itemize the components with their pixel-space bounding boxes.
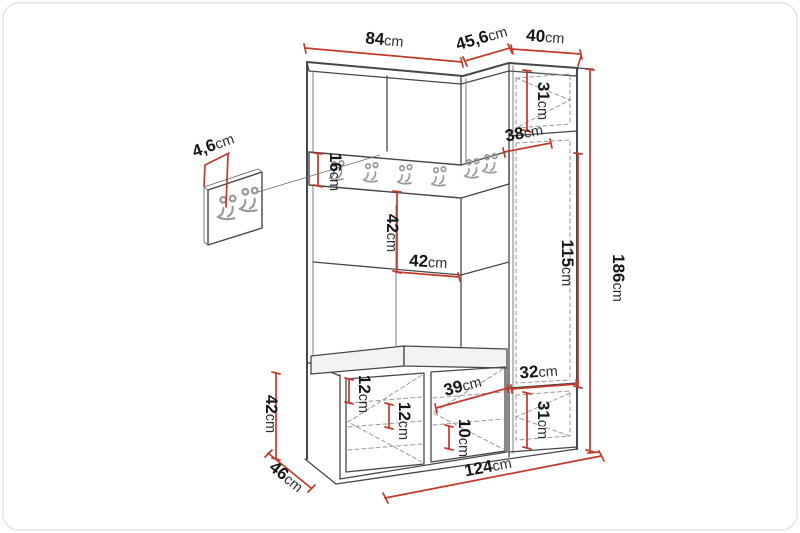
dim-label-right-top: 31cm [534,82,553,120]
dim-label-bench-height: 42cm [262,395,281,433]
dimension-labels: 84cm 45,6cm 40cm 4,6cm 16cm 42cm 42cm 38… [190,21,628,496]
dim-label-total-height: 186cm [609,254,628,302]
dim-label-top-main: 84cm [365,28,405,50]
dim-label-right-width: 32cm [519,361,558,383]
open-shelf-section [313,205,509,346]
dim-label-right-bottom: 31cm [534,401,553,439]
dim-label-panel-thickness: 4,6cm [190,129,237,162]
furniture-diagram: 84cm 45,6cm 40cm 4,6cm 16cm 42cm 42cm 38… [0,0,800,533]
bench-cushions [311,346,507,374]
dim-label-bench-shelf: 10cm [455,419,474,457]
dim-label-top-corner: 45,6cm [454,21,510,54]
furniture-diagram-page: 84cm 45,6cm 40cm 4,6cm 16cm 42cm 42cm 38… [0,0,800,533]
dim-label-rail-height: 16cm [326,153,345,191]
dim-label-right-door: 115cm [558,240,577,287]
dim-label-mid-height: 42cm [383,214,402,252]
dim-label-bench-upper: 12cm [355,375,374,413]
dim-label-bench-lower: 12cm [395,402,414,440]
dim-label-top-right: 40cm [526,26,565,48]
dim-label-mid-width: 42cm [409,251,448,272]
dim-label-depth: 46cm [266,457,308,496]
image-border [3,3,797,530]
